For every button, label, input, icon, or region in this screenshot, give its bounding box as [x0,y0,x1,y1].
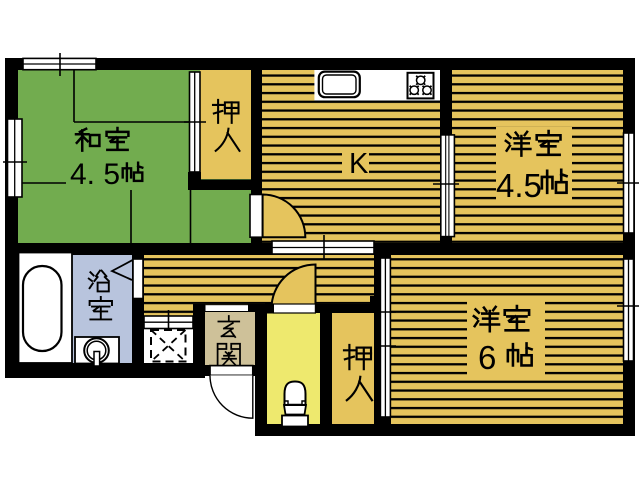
svg-text:K: K [349,148,369,180]
svg-text:4.5: 4.5 [496,167,542,204]
svg-text:6: 6 [478,339,496,376]
svg-text:4. 5: 4. 5 [70,158,120,191]
